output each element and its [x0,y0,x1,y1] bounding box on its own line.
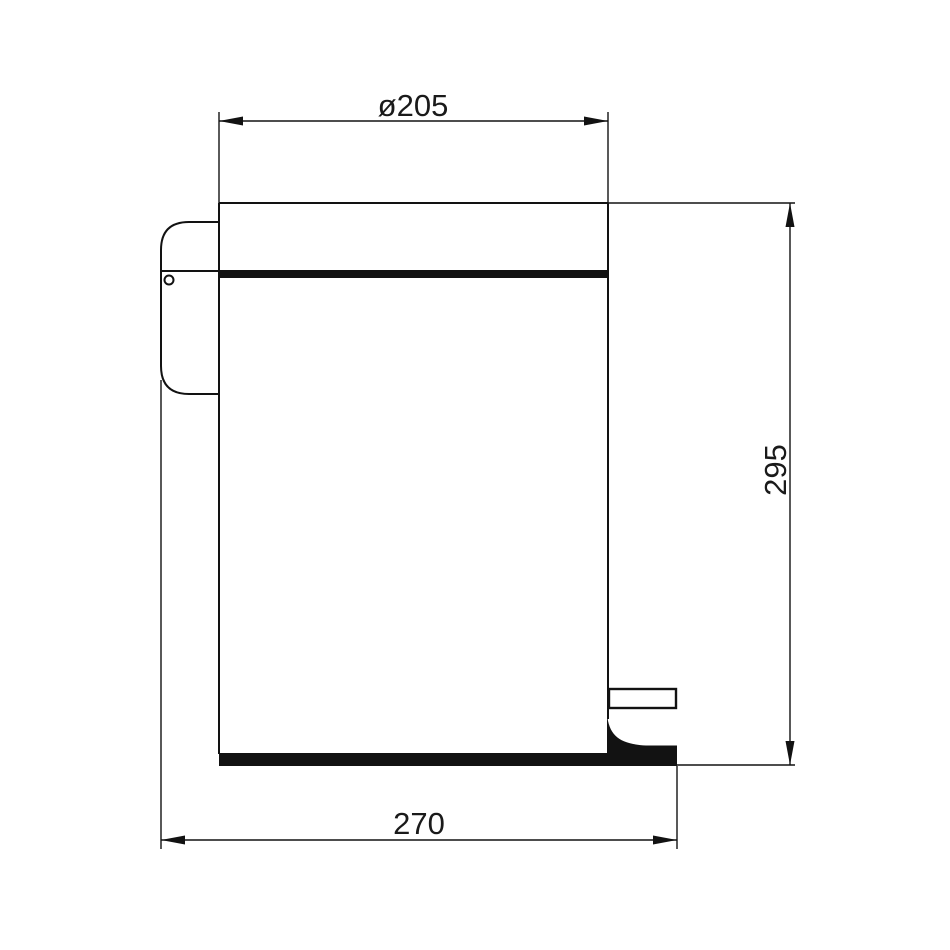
dimension-label-body-height: 295 [758,444,793,496]
dimension-base-depth: 270 [161,380,677,849]
lid-seam-bar [219,270,608,278]
hinge-outline [161,222,219,394]
bin-body [219,203,677,766]
technical-drawing-svg: ø205 295 270 [0,0,950,950]
hinge-bracket [161,222,219,394]
arrowhead-up-icon [786,203,795,227]
hinge-pivot-hole [165,276,174,285]
dimension-lid-diameter: ø205 [219,88,608,203]
arrowhead-left-icon [161,836,185,845]
arrowhead-right-icon [584,117,608,126]
dimension-label-lid-diameter: ø205 [378,88,449,123]
dimension-label-base-depth: 270 [393,806,445,841]
pedal-plate [609,689,676,708]
arrowhead-down-icon [786,741,795,765]
drawing-canvas: ø205 295 270 [0,0,950,950]
dimension-body-height: 295 [608,203,795,765]
arrowhead-right-icon [653,836,677,845]
arrowhead-left-icon [219,117,243,126]
pedal-assembly [607,689,677,766]
pedal-foot-base [607,714,677,766]
